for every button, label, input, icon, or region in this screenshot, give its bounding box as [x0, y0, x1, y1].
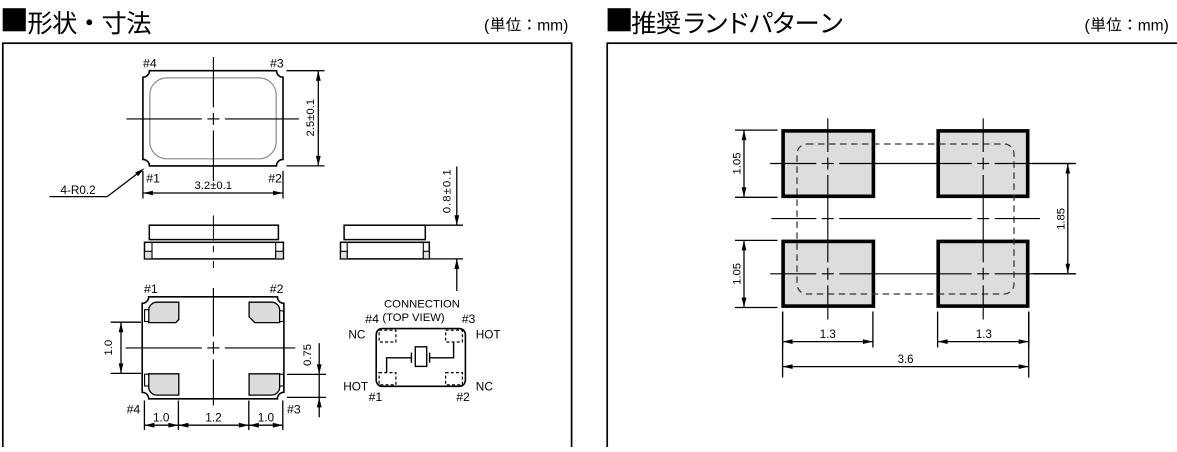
svg-text:#3: #3 [270, 57, 284, 71]
svg-text:1.05: 1.05 [731, 263, 743, 285]
svg-text:mm): mm) [1138, 17, 1169, 34]
svg-text:#3: #3 [287, 403, 301, 417]
svg-text:HOT: HOT [343, 380, 368, 394]
svg-text:1.0: 1.0 [153, 410, 170, 424]
svg-text:#1: #1 [146, 172, 160, 186]
svg-text:#4: #4 [143, 57, 157, 71]
svg-text:3.6: 3.6 [898, 354, 914, 366]
svg-text:(: ( [1085, 17, 1091, 34]
svg-text:1.05: 1.05 [731, 153, 743, 175]
svg-text:#2: #2 [456, 390, 470, 404]
svg-text:1.2: 1.2 [205, 410, 221, 424]
svg-text:NC: NC [476, 380, 494, 394]
svg-text:2.5±0.1: 2.5±0.1 [305, 99, 317, 137]
svg-text:mm): mm) [537, 17, 568, 34]
svg-text:#2: #2 [268, 172, 282, 186]
svg-text:#2: #2 [270, 282, 284, 296]
svg-text:#3: #3 [462, 312, 476, 326]
svg-text:1.85: 1.85 [1055, 208, 1067, 230]
svg-text:1.0: 1.0 [258, 410, 275, 424]
svg-text:#4: #4 [127, 403, 141, 417]
svg-text:4-R0.2: 4-R0.2 [61, 184, 96, 197]
svg-text:1.0: 1.0 [103, 340, 115, 356]
svg-text:NC: NC [348, 328, 366, 342]
svg-text:0.75: 0.75 [302, 344, 314, 366]
svg-text:0.8±0.1: 0.8±0.1 [441, 168, 453, 213]
svg-text:#1: #1 [144, 282, 158, 296]
svg-text:#4: #4 [365, 312, 379, 326]
svg-text:(TOP VIEW): (TOP VIEW) [382, 312, 445, 324]
svg-text:1.3: 1.3 [820, 329, 836, 341]
svg-text:(: ( [484, 17, 490, 34]
svg-text:HOT: HOT [476, 328, 501, 342]
svg-text:#1: #1 [369, 390, 383, 404]
svg-text:1.3: 1.3 [976, 329, 992, 341]
svg-text:3.2±0.1: 3.2±0.1 [194, 180, 232, 192]
svg-text:CONNECTION: CONNECTION [384, 298, 460, 310]
